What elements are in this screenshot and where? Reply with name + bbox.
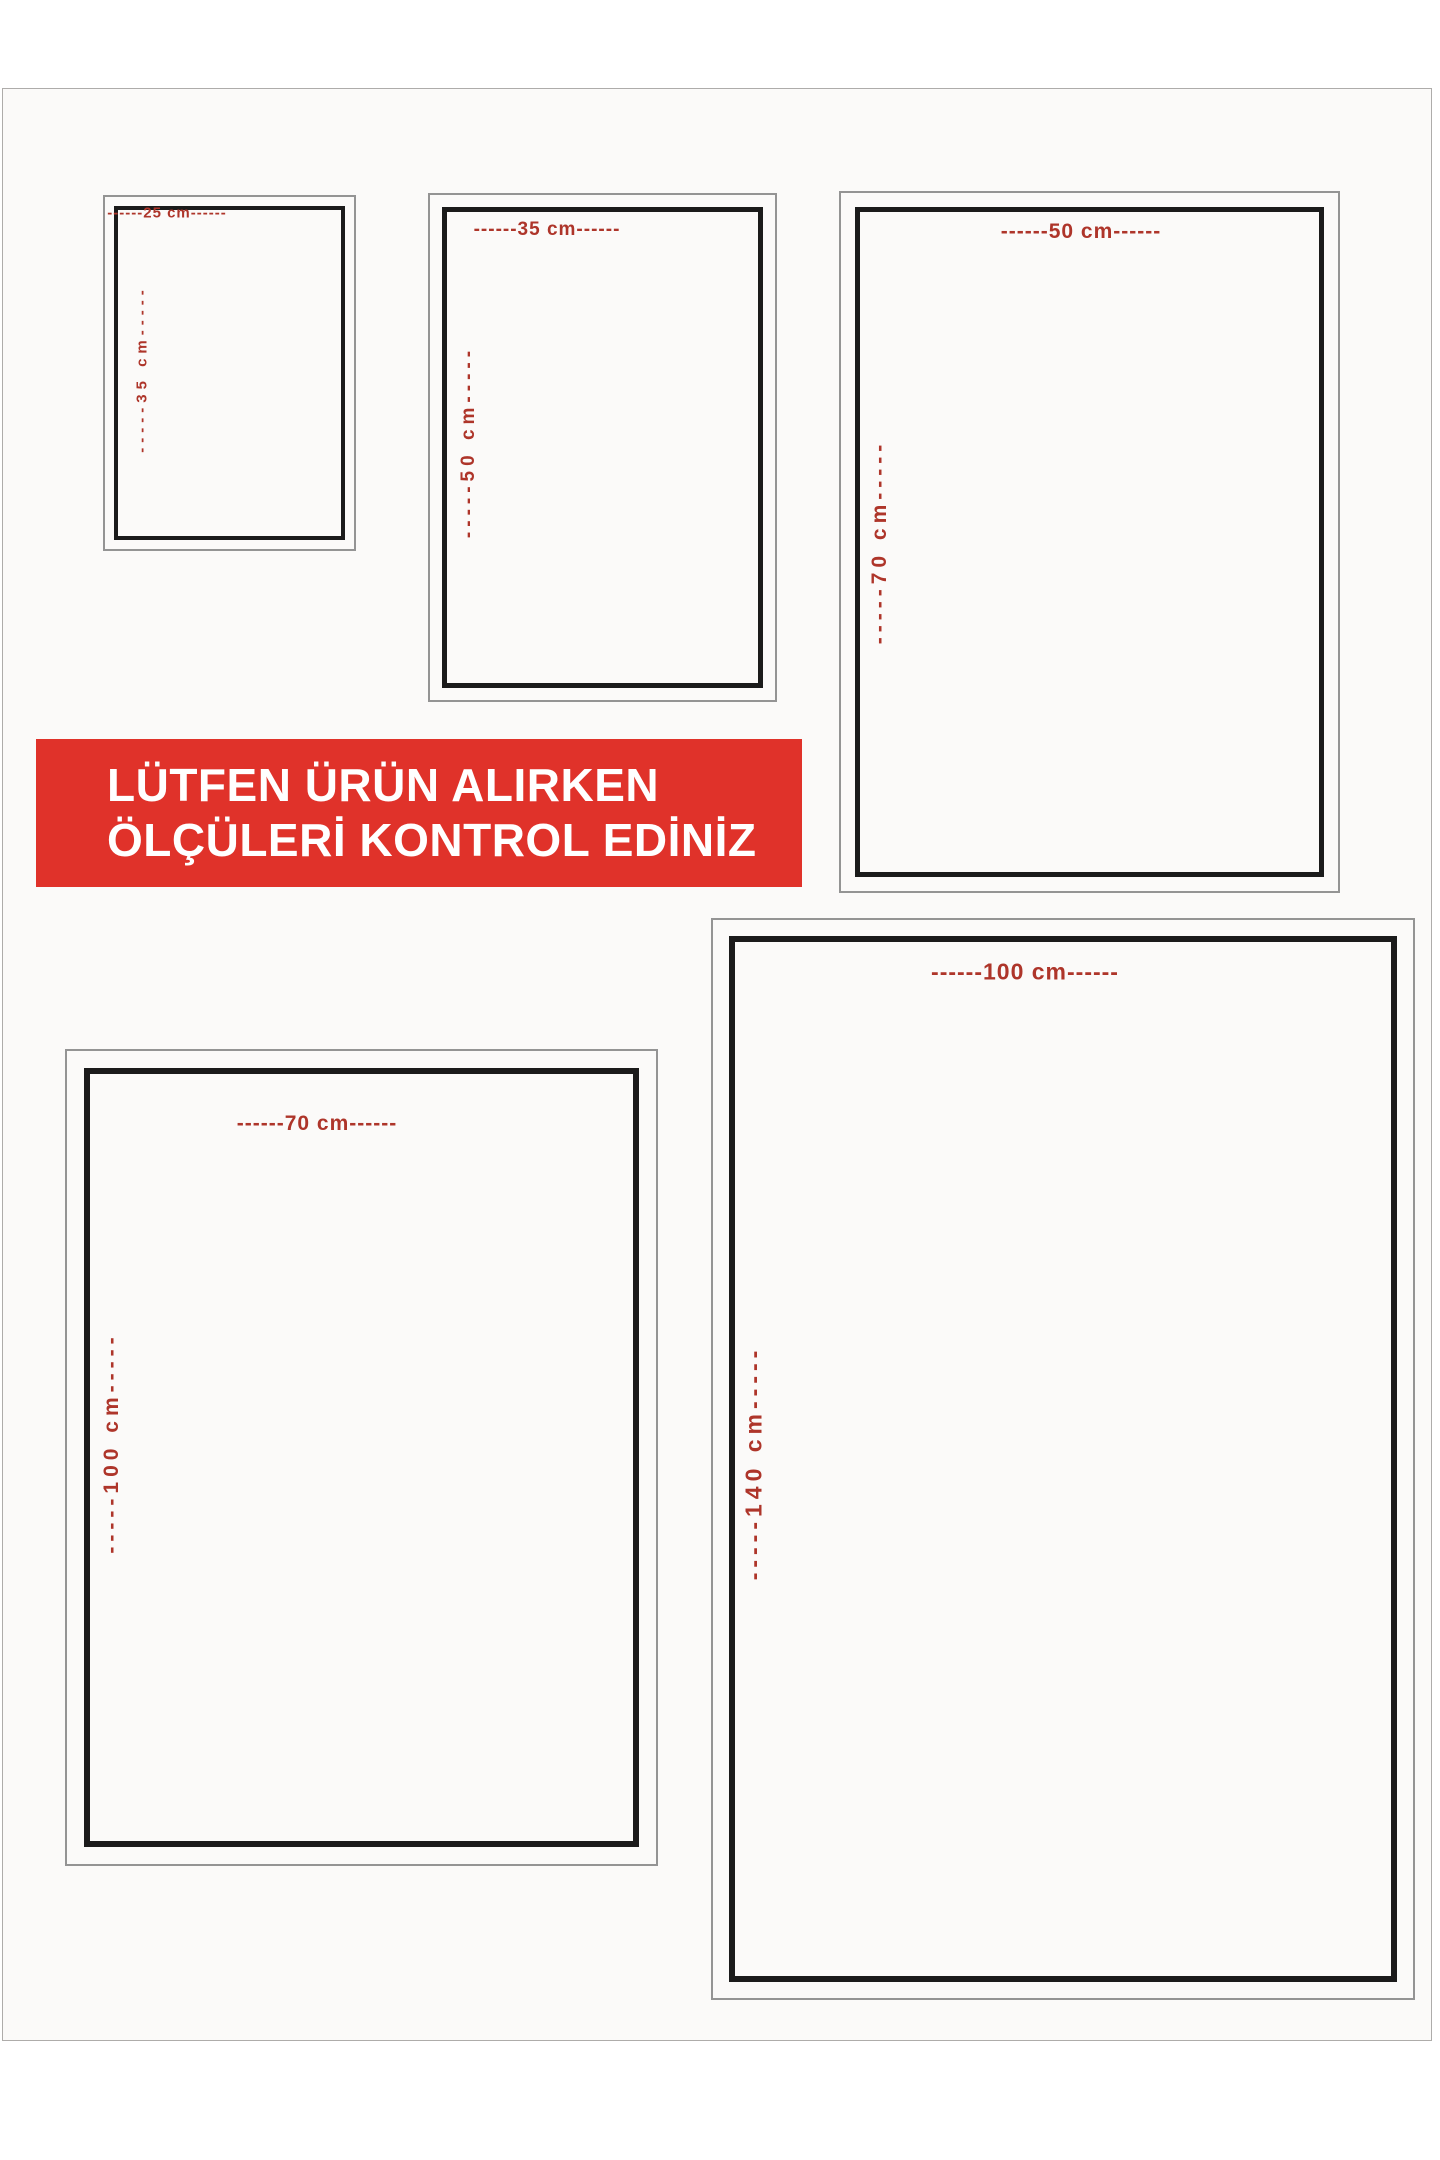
size-box-35x50: ------35 cm------ -----50 cm----- [428, 193, 777, 702]
size-box-70x100: ------70 cm------ -----100 cm----- [65, 1049, 658, 1866]
size-frame [442, 207, 763, 688]
warning-banner: LÜTFEN ÜRÜN ALIRKEN ÖLÇÜLERİ KONTROL EDİ… [36, 739, 802, 887]
size-guide-image: ------25 cm------ -----35 cm----- ------… [0, 0, 1440, 2160]
size-frame [855, 207, 1324, 877]
size-box-100x140: ------100 cm------ -----140 cm----- [711, 918, 1415, 2000]
width-label: ------100 cm------ [931, 959, 1119, 986]
width-label: ------50 cm------ [1001, 220, 1161, 244]
size-frame [729, 936, 1397, 1982]
width-label: ------35 cm------ [474, 219, 621, 241]
height-label: -----140 cm----- [741, 1346, 768, 1581]
width-label: ------70 cm------ [237, 1112, 397, 1136]
size-box-25x35: ------25 cm------ -----35 cm----- [103, 195, 356, 551]
size-box-50x70: ------50 cm------ -----70 cm----- [839, 191, 1340, 893]
warning-line-2: ÖLÇÜLERİ KONTROL EDİNİZ [107, 813, 802, 868]
height-label: -----35 cm----- [134, 285, 151, 452]
width-label: ------25 cm------ [107, 205, 226, 222]
height-label: -----70 cm----- [868, 440, 892, 644]
height-label: -----100 cm----- [100, 1332, 124, 1553]
size-frame [84, 1068, 639, 1847]
warning-line-1: LÜTFEN ÜRÜN ALIRKEN [107, 758, 802, 813]
height-label: -----50 cm----- [458, 346, 480, 538]
